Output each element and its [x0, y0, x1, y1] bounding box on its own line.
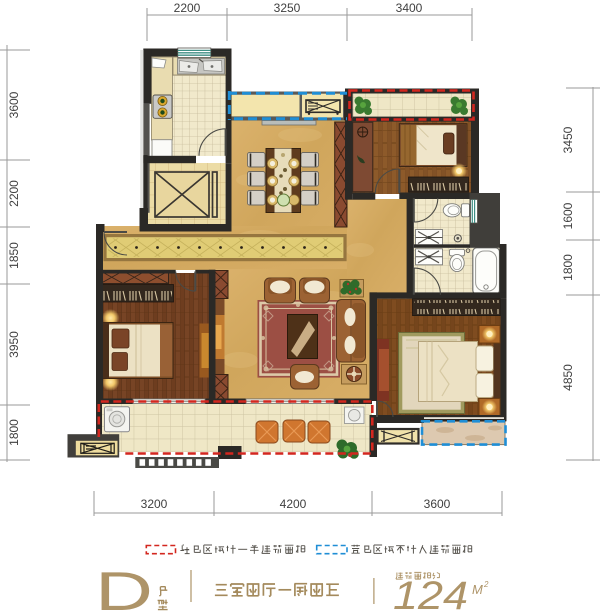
svg-text:1600: 1600: [561, 202, 575, 229]
svg-text:3400: 3400: [396, 1, 423, 15]
svg-text:3950: 3950: [7, 331, 21, 358]
svg-text:3450: 3450: [561, 126, 575, 153]
svg-text:3600: 3600: [7, 91, 21, 118]
svg-text:2: 2: [483, 580, 489, 589]
svg-text:124: 124: [393, 574, 468, 612]
svg-text:4850: 4850: [561, 364, 575, 391]
svg-text:3600: 3600: [424, 497, 451, 511]
svg-text:1800: 1800: [7, 419, 21, 446]
svg-text:2200: 2200: [7, 180, 21, 207]
svg-text:3250: 3250: [274, 1, 301, 15]
svg-text:1850: 1850: [7, 242, 21, 269]
svg-text:4200: 4200: [280, 497, 307, 511]
svg-text:2200: 2200: [174, 1, 201, 15]
svg-text:1800: 1800: [561, 254, 575, 281]
svg-text:M: M: [472, 582, 483, 597]
svg-text:3200: 3200: [141, 497, 168, 511]
svg-text:D: D: [95, 560, 153, 612]
